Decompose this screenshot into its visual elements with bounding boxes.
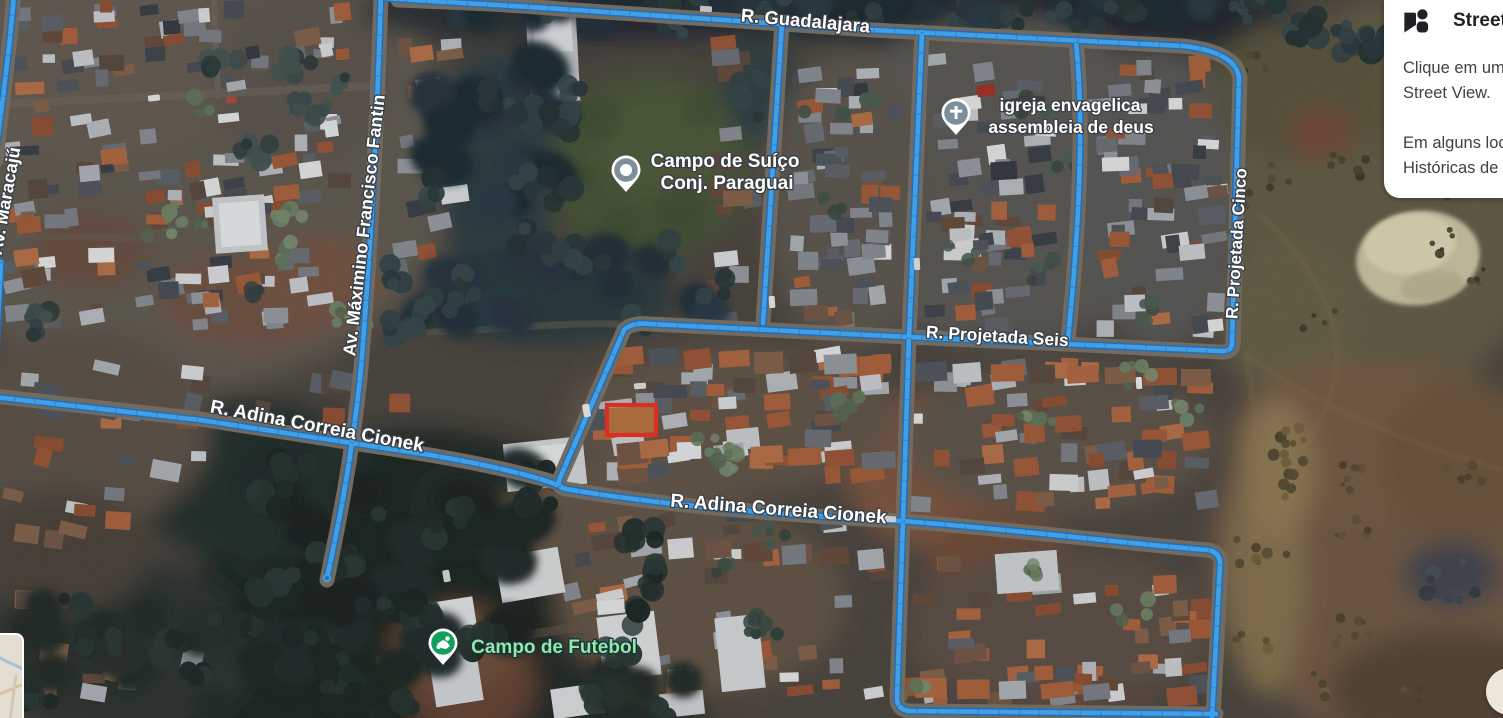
svg-text:Campo de Suíço: Campo de Suíço (651, 151, 800, 172)
svg-text:assembleia de deus: assembleia de deus (988, 117, 1154, 137)
svg-text:igreja envagelica: igreja envagelica (999, 95, 1140, 115)
svg-text:Conj. Paraguai: Conj. Paraguai (660, 173, 793, 194)
svg-text:Campo de Futebol: Campo de Futebol (471, 637, 637, 658)
